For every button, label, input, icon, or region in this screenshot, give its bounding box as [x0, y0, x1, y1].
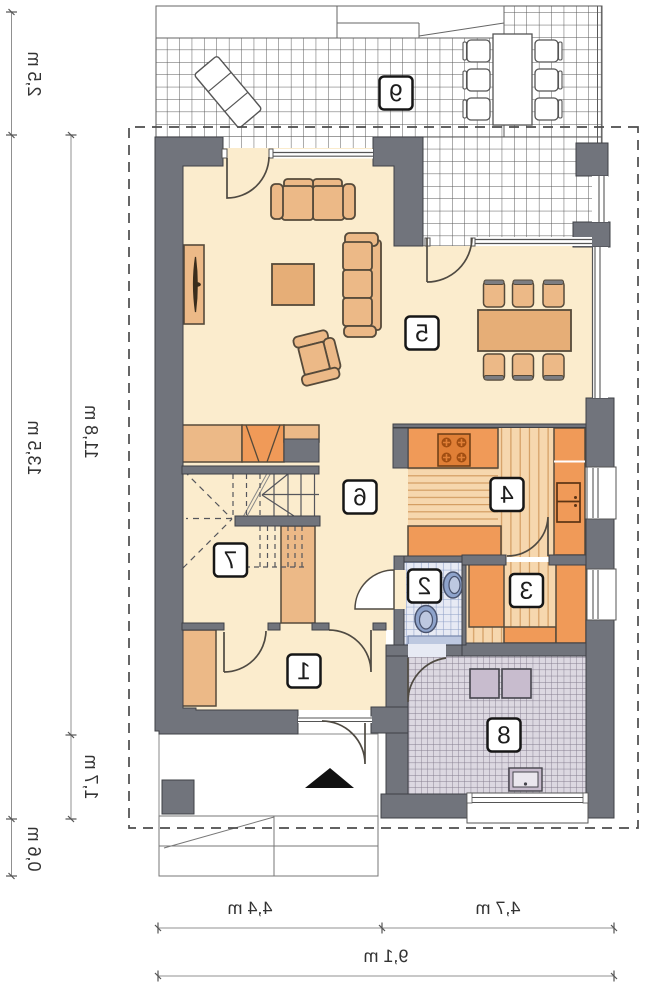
- svg-text:13,5 m: 13,5 m: [24, 420, 44, 475]
- svg-text:1: 1: [297, 658, 311, 685]
- svg-text:6: 6: [353, 484, 367, 511]
- svg-text:4: 4: [500, 482, 514, 509]
- svg-text:2,5 m: 2,5 m: [24, 51, 44, 96]
- svg-text:8: 8: [497, 722, 511, 749]
- svg-text:4,4 m: 4,4 m: [227, 898, 272, 918]
- svg-text:0,6 m: 0,6 m: [24, 826, 44, 871]
- svg-text:9: 9: [389, 80, 403, 107]
- svg-text:11,8 m: 11,8 m: [81, 405, 101, 459]
- svg-text:3: 3: [520, 578, 534, 605]
- svg-text:2: 2: [418, 573, 432, 600]
- svg-text:9,1 m: 9,1 m: [363, 946, 408, 966]
- svg-text:4,7 m: 4,7 m: [475, 898, 520, 918]
- svg-text:5: 5: [415, 320, 429, 347]
- svg-text:7: 7: [224, 547, 238, 574]
- svg-text:1,7 m: 1,7 m: [81, 754, 101, 799]
